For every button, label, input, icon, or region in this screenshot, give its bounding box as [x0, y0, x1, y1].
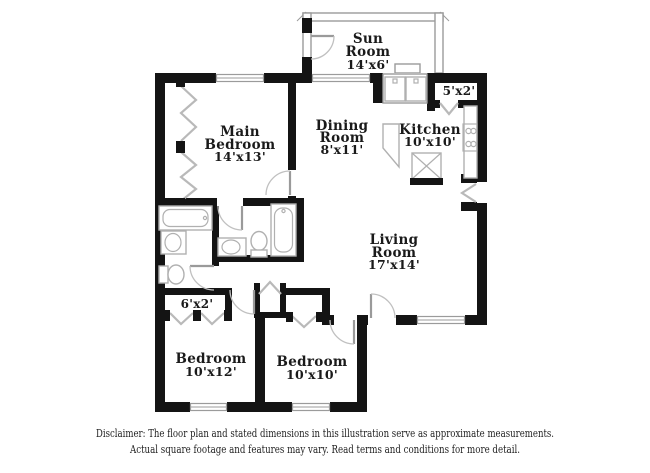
kitchen-counter-stove [463, 106, 477, 178]
kitchen-dims: 10'x10' [404, 134, 456, 149]
disclaimer-line-1: Disclaimer: The floor plan and stated di… [96, 426, 554, 440]
bedroom-left-dims: 10'x12' [185, 364, 237, 379]
bedroom-right-window [293, 404, 330, 411]
hall-bath-toilet [251, 232, 267, 258]
sun-room-dims: 14'x6' [347, 57, 390, 72]
bedroom-right-closet-bifold [286, 312, 323, 327]
bathroom-door-from-hall [190, 266, 214, 290]
linen-closet-bifold [259, 282, 281, 294]
main-bedroom-window [217, 75, 264, 82]
ensuite-sink [161, 231, 186, 254]
floor-plan-page: Sun Room 14'x6' Main Bedroom 14'x13' Din… [0, 0, 650, 473]
ensuite-toilet [159, 265, 184, 284]
disclaimer-line-2: Actual square footage and features may v… [129, 442, 520, 456]
utility-door-zigzag [462, 184, 476, 202]
dining-room-dims: 8'x11' [321, 142, 364, 157]
living-room-window [418, 317, 465, 324]
main-bedroom-door [266, 171, 290, 195]
hall-bath-tub [271, 204, 296, 256]
sun-room-entry-door [311, 36, 334, 59]
kitchen-island [410, 153, 443, 185]
main-bedroom-dims: 14'x13' [214, 149, 266, 164]
closet-5x2-bifold [440, 103, 458, 114]
disclaimer: Disclaimer: The floor plan and stated di… [96, 426, 554, 456]
bathroom-door-from-bedroom [218, 206, 242, 230]
closet-6x2-dims: 6'x2' [181, 297, 214, 311]
bedroom-left-window [191, 404, 227, 411]
living-room-dims: 17'x14' [368, 257, 420, 272]
closet-6x2-bifolds [162, 310, 232, 324]
hall-bath-sink [218, 238, 246, 256]
washer-dryer [383, 74, 427, 103]
ensuite-bathtub [159, 206, 212, 230]
sun-room-interior-window [313, 75, 370, 82]
bedroom-right-dims: 10'x10' [286, 367, 338, 382]
floor-plan-image: Sun Room 14'x6' Main Bedroom 14'x13' Din… [0, 0, 650, 473]
closet-5x2-dims: 5'x2' [443, 84, 476, 98]
front-door [371, 294, 395, 318]
sun-room-step [395, 64, 420, 73]
main-bedroom-casement-windows [176, 77, 196, 208]
dining-bar-counter [383, 124, 399, 167]
bedroom-left-door [230, 290, 254, 314]
